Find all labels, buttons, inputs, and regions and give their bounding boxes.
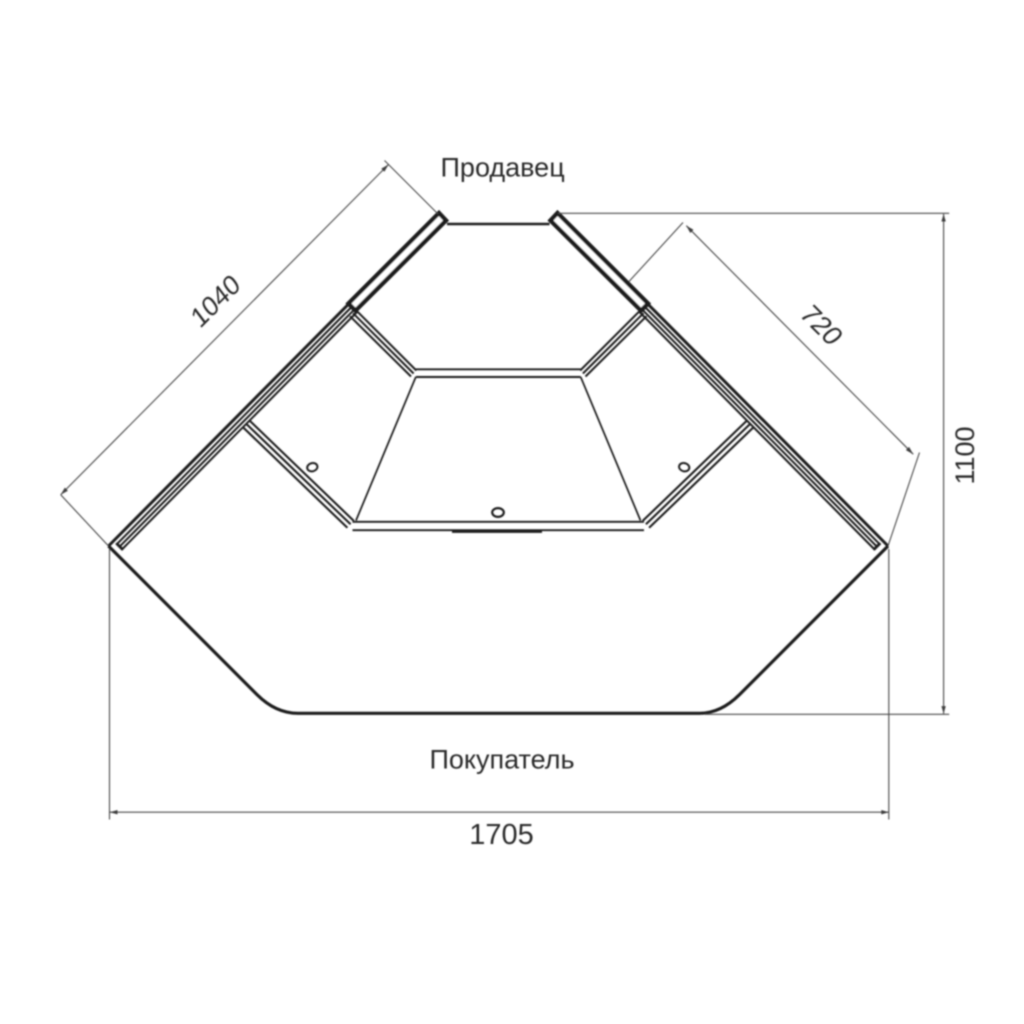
- svg-text:1100: 1100: [950, 426, 980, 484]
- svg-text:Покупатель: Покупатель: [429, 745, 574, 775]
- svg-text:1705: 1705: [469, 819, 534, 851]
- svg-text:Продавец: Продавец: [441, 153, 565, 183]
